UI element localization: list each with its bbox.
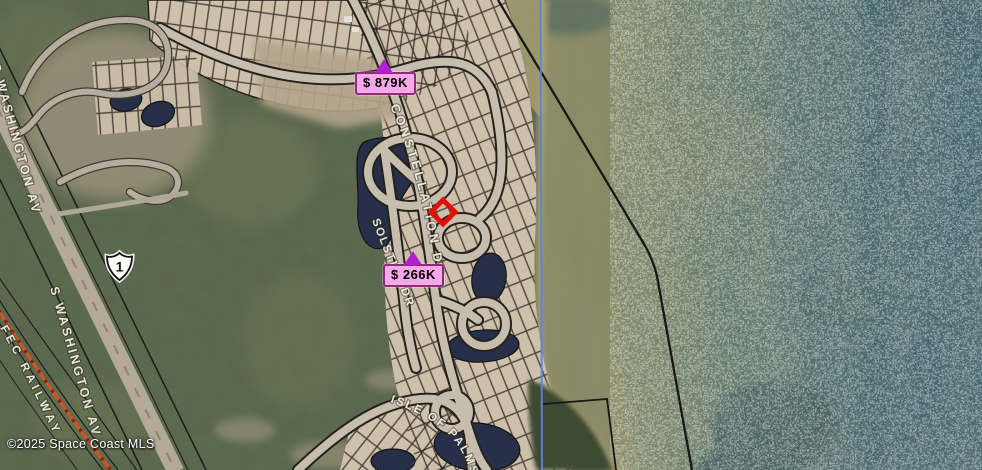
map-attribution: ©2025 Space Coast MLS — [7, 437, 155, 451]
price-marker-879k[interactable]: $ 879K — [355, 72, 416, 95]
price-marker-266k[interactable]: $ 266K — [383, 264, 444, 287]
price-marker-label: $ 879K — [363, 75, 408, 90]
image-grain — [0, 0, 982, 470]
satellite-map[interactable]: CONSTELLATION DR SOLSTICE DR ISLE OF PAL… — [0, 0, 982, 470]
price-marker-pointer-icon — [375, 59, 393, 73]
route-number: 1 — [116, 259, 124, 275]
price-marker-label: $ 266K — [391, 267, 436, 282]
price-marker-pointer-icon — [404, 251, 422, 265]
map-canvas[interactable]: CONSTELLATION DR SOLSTICE DR ISLE OF PAL… — [0, 0, 982, 470]
